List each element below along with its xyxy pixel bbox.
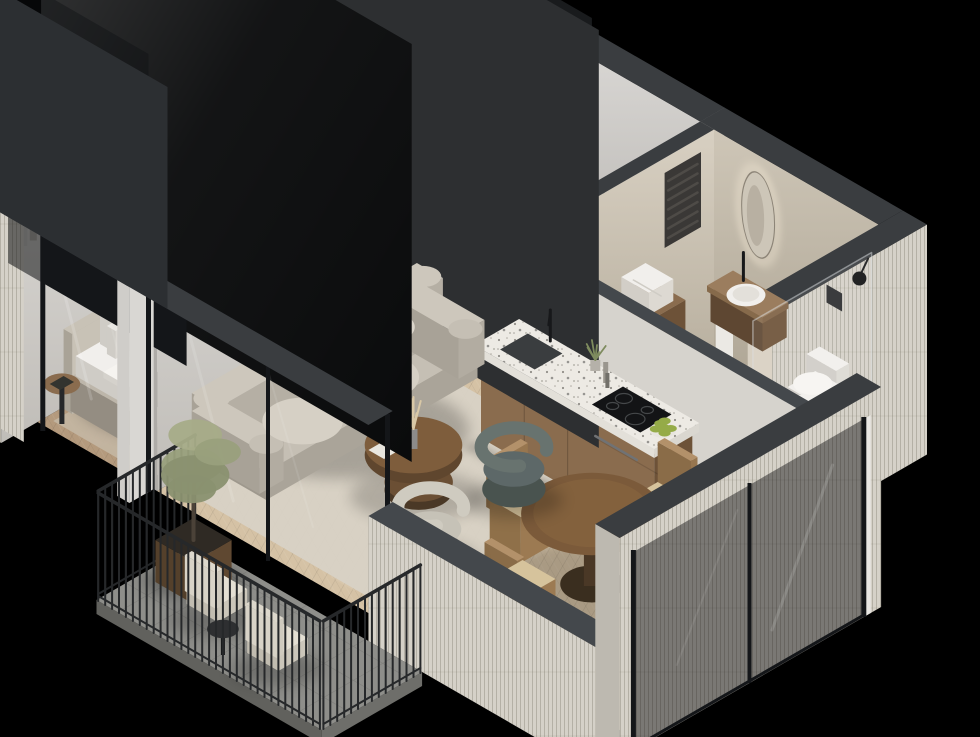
bottle — [605, 373, 609, 388]
sofa-arm-end — [448, 319, 482, 339]
east-window-post — [631, 550, 636, 737]
door-frame-post — [266, 347, 270, 561]
east-window-post — [861, 417, 866, 617]
round-basin-inner — [733, 286, 760, 302]
apartment-isometric-scene — [0, 0, 980, 737]
herb-pot — [590, 360, 600, 371]
green-apple — [659, 418, 671, 425]
bedside-table-leg — [59, 384, 64, 424]
bed-pillow-front — [107, 326, 116, 359]
kitchen-faucet-spout — [549, 312, 551, 325]
outdoor-chair-back-side — [216, 569, 223, 609]
east-window-post — [748, 483, 752, 683]
olive-tree-foliage — [167, 475, 216, 503]
green-apple — [659, 430, 671, 437]
front-wall-mullion-front — [117, 280, 129, 503]
olive-tree-foliage — [195, 439, 241, 466]
east-wall-front — [595, 524, 619, 737]
scene-root — [0, 0, 927, 737]
floorplan-render — [0, 0, 980, 737]
